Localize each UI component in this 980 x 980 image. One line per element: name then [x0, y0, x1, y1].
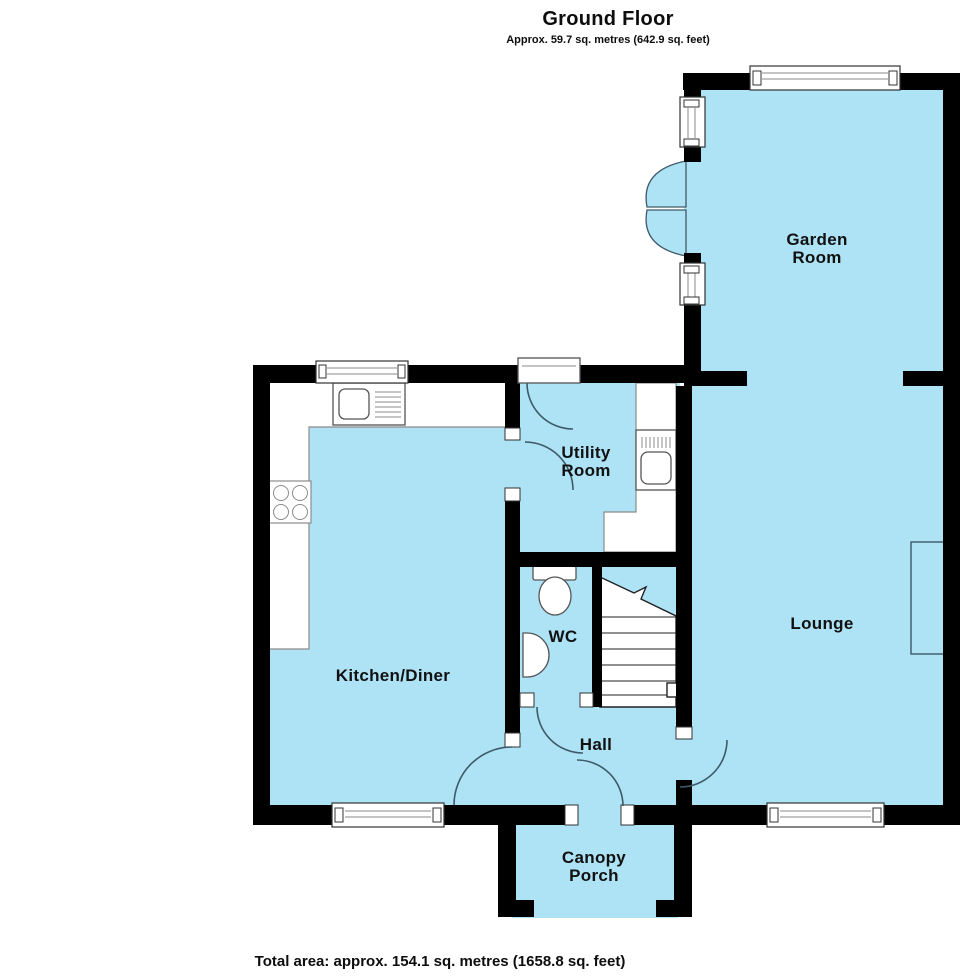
- wall: [676, 780, 692, 808]
- jamb: [676, 727, 692, 739]
- lounge-label: Lounge: [742, 615, 902, 633]
- wall: [578, 365, 701, 383]
- utility-back-door-leaf: [518, 358, 580, 383]
- hall-label: Hall: [546, 736, 646, 754]
- wall: [943, 73, 960, 825]
- lounge-bottom-window: [767, 803, 884, 827]
- wall: [505, 693, 522, 707]
- garden-room-top-window: [750, 66, 900, 90]
- jamb: [505, 488, 520, 501]
- floor-plan-page: Ground Floor Approx. 59.7 sq. metres (64…: [0, 0, 980, 980]
- wall: [253, 365, 270, 825]
- wall: [505, 501, 520, 552]
- wc-label: WC: [523, 628, 603, 646]
- jamb: [621, 805, 634, 825]
- jamb: [505, 733, 520, 747]
- utility-sink-bowl: [641, 452, 671, 484]
- garden-room-label: Garden Room: [767, 231, 867, 267]
- utility-door-gap: [503, 436, 523, 496]
- toilet-bowl: [539, 577, 571, 615]
- wall: [632, 805, 773, 825]
- wall: [676, 386, 692, 552]
- total-area-text: Total area: approx. 154.1 sq. metres (16…: [140, 953, 740, 970]
- wc-door-gap: [534, 690, 582, 710]
- wall: [505, 552, 692, 567]
- wall: [404, 365, 518, 383]
- wall: [253, 805, 338, 825]
- garden-room-left-window-lower: [680, 263, 705, 305]
- french-door-leaf-lower: [646, 210, 686, 256]
- kitchen-bottom-window: [332, 803, 444, 827]
- wall: [676, 567, 692, 727]
- wall: [505, 383, 520, 428]
- garden-room-left-window-upper: [680, 97, 705, 147]
- kitchen-top-window: [316, 361, 408, 383]
- room-fills: [266, 78, 948, 918]
- utility-room-label: Utility Room: [546, 444, 626, 480]
- wall: [498, 900, 534, 917]
- wall: [879, 805, 960, 825]
- floor-plan-svg: [0, 0, 980, 980]
- hall-lounge-door-gap: [672, 736, 694, 784]
- wall: [674, 822, 692, 900]
- wall: [656, 900, 692, 917]
- jamb: [565, 805, 578, 825]
- jamb: [520, 693, 534, 707]
- jamb: [505, 428, 520, 440]
- wall: [505, 567, 520, 735]
- kitchen-sink-bowl: [339, 389, 369, 419]
- canopy-porch-label: Canopy Porch: [544, 849, 644, 885]
- french-door-leaf-upper: [646, 161, 686, 207]
- kitchen-diner-label: Kitchen/Diner: [293, 667, 493, 685]
- kitchen-hall-door-gap: [503, 744, 523, 808]
- wall: [903, 371, 960, 386]
- jamb: [580, 693, 593, 707]
- wall: [498, 808, 516, 900]
